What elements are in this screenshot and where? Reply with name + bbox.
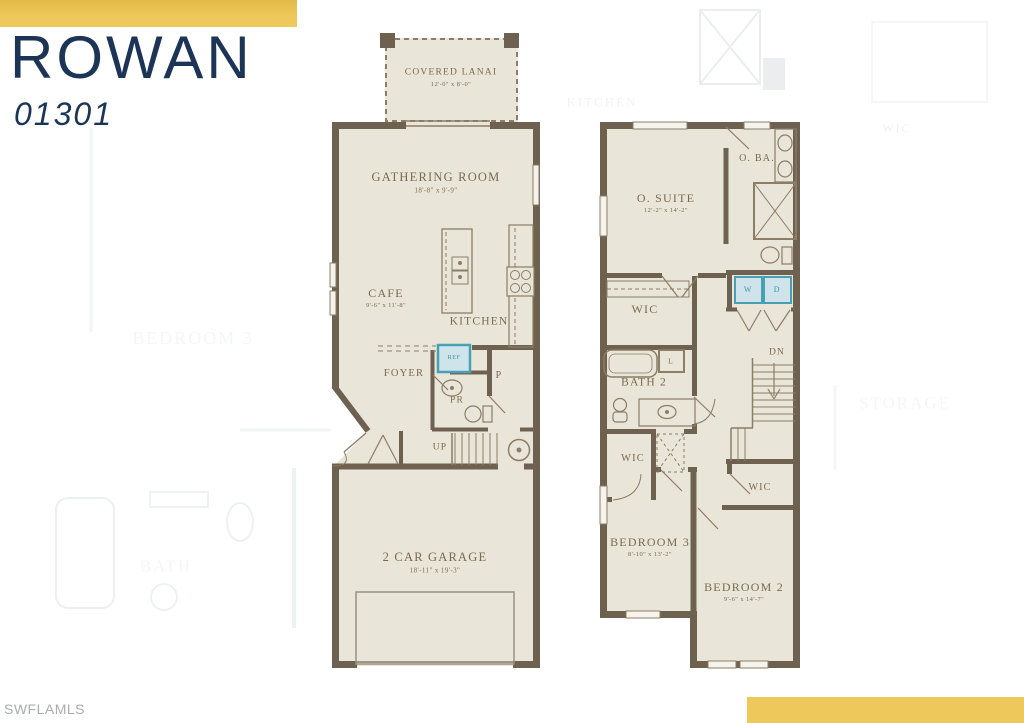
- label-wic-bedroom2: WIC: [748, 483, 771, 493]
- label-covered-lanai-dims: 12'-0" x 8'-0": [431, 82, 471, 89]
- label-linen: L: [668, 357, 674, 365]
- label-kitchen: KITCHEN: [450, 316, 509, 328]
- label-stairs-down: DN: [769, 348, 785, 358]
- label-bedroom2: BEDROOM 2: [704, 581, 784, 593]
- label-pantry: P: [496, 371, 503, 381]
- label-cafe: CAFE: [368, 287, 403, 299]
- ghost-label-storage: STORAGE: [859, 395, 951, 412]
- label-refrigerator: REF: [448, 355, 461, 361]
- label-stairs-up: UP: [433, 443, 448, 453]
- ghost-label-bath: BATH: [140, 558, 192, 575]
- ghost-label-wic: WIC: [882, 122, 911, 134]
- label-bath2: BATH 2: [621, 377, 667, 389]
- floorplan-drawing: [0, 0, 1024, 723]
- label-bedroom3: BEDROOM 3: [610, 536, 690, 548]
- label-wic-owner: WIC: [632, 303, 659, 315]
- label-garage-dims: 18'-11" x 19'-3": [410, 568, 461, 575]
- label-owner-suite: O. SUITE: [637, 192, 695, 204]
- label-bedroom2-dims: 9'-6" x 14'-7": [724, 597, 764, 604]
- label-washer: W: [744, 286, 752, 294]
- label-owner-bath: O. BA.: [739, 154, 775, 164]
- label-powder-room: PR: [450, 396, 464, 406]
- label-bedroom3-dims: 8'-10" x 13'-2": [628, 552, 672, 559]
- ghost-label-kitchen: KITCHEN: [566, 96, 637, 109]
- label-owner-suite-dims: 12'-2" x 14'-2": [644, 208, 688, 215]
- label-garage: 2 CAR GARAGE: [383, 551, 488, 564]
- label-gathering-room: GATHERING ROOM: [372, 171, 501, 184]
- label-dryer: D: [774, 286, 780, 294]
- label-gathering-room-dims: 18'-8" x 9'-9": [415, 188, 458, 195]
- ghost-label-bedroom3: BEDROOM 3: [132, 329, 254, 347]
- label-wic-bedroom3: WIC: [621, 454, 645, 465]
- label-foyer: FOYER: [384, 369, 424, 380]
- label-cafe-dims: 9'-6" x 11'-8": [366, 303, 406, 310]
- label-covered-lanai: COVERED LANAI: [405, 68, 497, 78]
